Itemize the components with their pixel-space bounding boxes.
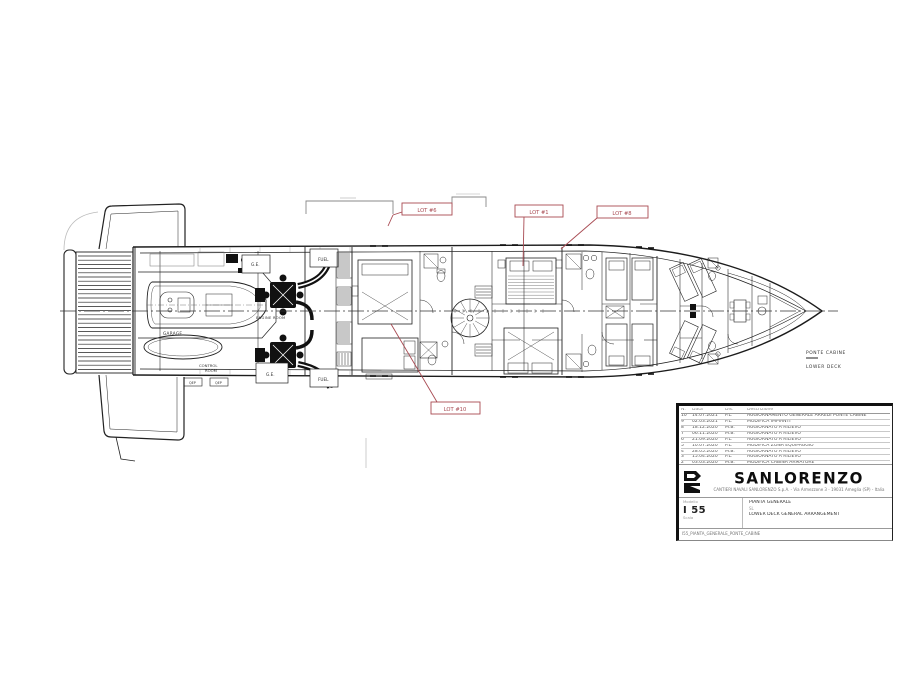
annotation-brackets (306, 197, 486, 214)
swim-platform (64, 250, 133, 374)
deck-name-secondary: LOWER DECK (806, 364, 841, 370)
drawing-title-line3: LOWER DECK GENERAL ARRANGEMENT (749, 512, 892, 518)
revision-date: 06.11.2020 (692, 432, 725, 437)
revision-by: P.L. (725, 414, 747, 419)
revision-header-desc: Descrizione (747, 408, 890, 413)
revision-desc: MODIFICA CABINA ARMATORE (747, 461, 890, 464)
sanlorenzo-logo-mark (683, 470, 702, 493)
revision-by: P.L. (725, 438, 747, 443)
revision-no: 8 (681, 426, 692, 431)
revision-date: 02.03.2021 (692, 420, 725, 425)
vip-cabin-zone (498, 258, 562, 374)
revision-date: 15.04.2020 (692, 455, 725, 460)
project-cell: Modello I 55 Scala (679, 498, 743, 528)
file-reference: I55_PIANTA_GENERALE_PONTE_CABINE (679, 529, 892, 538)
revision-by: P.L. (725, 444, 747, 449)
revision-date: 14.07.2021 (692, 414, 725, 419)
garage-label: GARAGE (163, 331, 182, 336)
revision-desc: AGGIORNATO A RILIEVO (747, 438, 890, 443)
deck-plan-drawing: GARAGE ENGINE ROOM CONTROL ROOM G.E. G.E… (0, 0, 900, 690)
fuel-label-bottom: FUEL (318, 377, 329, 382)
deck-name: PONTE CABINE LOWER DECK (806, 350, 846, 370)
revision-header-date: Data (692, 408, 725, 413)
generator-label-bottom: G.E. (266, 372, 275, 377)
revision-header-by: Dis. (725, 408, 747, 413)
revision-desc: MODIFICA IMPIANTI (747, 420, 890, 425)
callout-label-lot10: LOT #10 (444, 407, 467, 413)
revision-no: 7 (681, 432, 692, 437)
revision-date: 03.03.2020 (692, 461, 725, 464)
revision-table: N. Data Dis. Descrizione 1014.07.2021P.L… (679, 406, 892, 464)
callout-label-lot8: LOT #8 (612, 211, 631, 217)
revision-by: P.L. (725, 455, 747, 460)
guest-cabin-zone (562, 252, 653, 372)
revision-no: 5 (681, 444, 692, 449)
revision-by: M.B. (725, 461, 747, 464)
project-value: I 55 (683, 505, 742, 516)
drawing-title-cell: PIANTA GENERALE SL LOWER DECK GENERAL AR… (743, 498, 892, 528)
revision-no: 4 (681, 450, 692, 455)
corridor-walls (492, 304, 702, 340)
engine-port (255, 275, 304, 316)
engine-room-label: ENGINE ROOM (256, 316, 285, 320)
revision-no: 2 (681, 461, 692, 464)
titleblock-fields: Modello I 55 Scala PIANTA GENERALE SL LO… (679, 498, 892, 529)
scale-label: Scala (683, 516, 742, 521)
revision-no: 3 (681, 455, 692, 460)
revision-date: 21.09.2020 (692, 438, 725, 443)
logo-block: SANLORENZO CANTIERI NAVALI SANLORENZO S.… (679, 464, 892, 498)
brand-wordmark: SANLORENZO (710, 470, 888, 487)
revision-date: 18.12.2020 (692, 426, 725, 431)
stair-zone (451, 286, 492, 356)
revision-by: P.L. (725, 420, 747, 425)
generator-label-top: G.E. (251, 262, 260, 267)
revision-desc: AGGIORNAMENTO GENERALE ARREDI PONTE CABI… (747, 414, 890, 419)
revision-rows: 1014.07.2021P.L.AGGIORNAMENTO GENERALE A… (681, 414, 890, 464)
qep-label-2: QEP (215, 381, 222, 385)
centerline (60, 309, 838, 313)
revision-by: M.B. (725, 426, 747, 431)
revision-header-no: N. (681, 408, 692, 413)
logo-text-block: SANLORENZO CANTIERI NAVALI SANLORENZO S.… (710, 470, 888, 492)
control-room-label-2: ROOM (205, 368, 217, 373)
revision-by: M.B. (725, 432, 747, 437)
fuel-label-top: FUEL (318, 257, 329, 262)
titleblock: N. Data Dis. Descrizione 1014.07.2021P.L… (676, 403, 893, 541)
revision-desc: MODIFICA ZONA EQUIPAGGIO (747, 444, 890, 449)
revision-desc: AGGIORNATO A RILIEVO (747, 432, 890, 437)
qep-label-1: QEP (189, 381, 196, 385)
deck-name-primary: PONTE CABINE (806, 350, 846, 356)
revision-row: 203.03.2020M.B.MODIFICA CABINA ARMATORE (681, 461, 890, 464)
callout-label-lot1: LOT #1 (529, 210, 548, 216)
revision-desc: AGGIORNATO A RILIEVO (747, 426, 890, 431)
revision-no: 6 (681, 438, 692, 443)
revision-no: 9 (681, 420, 692, 425)
aft-cabin-zone (352, 254, 448, 379)
construction-lines (64, 194, 480, 468)
revision-date: 10.07.2020 (692, 444, 725, 449)
revision-by: M.B. (725, 450, 747, 455)
callout-label-lot6: LOT #6 (417, 208, 436, 214)
revision-no: 10 (681, 414, 692, 419)
revision-desc: AGGIORNATO A RILIEVO (747, 455, 890, 460)
brand-address: CANTIERI NAVALI SANLORENZO S.p.A. - Via … (710, 487, 888, 492)
revision-date: 28.05.2020 (692, 450, 725, 455)
revision-header: N. Data Dis. Descrizione (681, 407, 890, 414)
revision-desc: AGGIORNATO A RILIEVO (747, 450, 890, 455)
callouts: LOT #6 LOT #1 LOT #8 LOT #10 (388, 203, 648, 414)
